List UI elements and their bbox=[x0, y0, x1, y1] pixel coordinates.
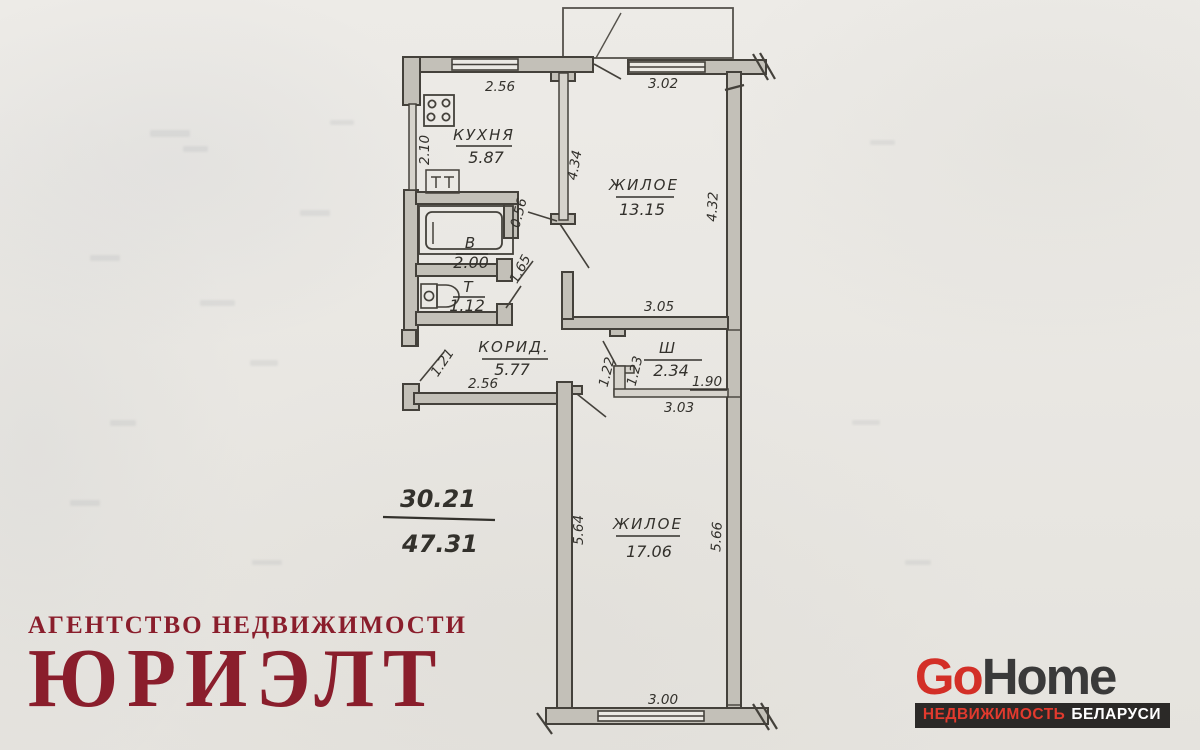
partitions bbox=[409, 73, 728, 397]
dim-closet-width: 1.90 bbox=[692, 374, 722, 390]
wall-bath-top bbox=[416, 192, 518, 204]
dim-entrance-door: 1.21 bbox=[428, 346, 458, 380]
wall-corner-top-left bbox=[403, 57, 420, 105]
room-living2-area: 17.06 bbox=[626, 542, 672, 561]
dim-living2-window: 3.00 bbox=[648, 692, 678, 708]
room-closet-area: 2.34 bbox=[653, 361, 689, 380]
dim-closet-door-right: 1.23 bbox=[624, 355, 647, 388]
dim-living2-height-left: 5.64 bbox=[571, 515, 587, 545]
room-bath-area: 2.00 bbox=[453, 253, 489, 272]
gohome-logo: GoHome НЕДВИЖИМОСТЬБЕЛАРУСИ bbox=[915, 654, 1170, 728]
sink-icon bbox=[426, 170, 459, 193]
wall-corridor-bottom bbox=[414, 393, 562, 404]
room-kitchen-area: 5.87 bbox=[468, 148, 504, 167]
gohome-go-text: Go bbox=[915, 648, 982, 705]
partition-kitchen-left bbox=[409, 104, 416, 190]
balcony-outline bbox=[563, 8, 733, 58]
toilet-door-swing bbox=[506, 286, 521, 308]
dim-closet-span: 3.03 bbox=[664, 400, 694, 416]
wall-living1-bottom bbox=[562, 317, 728, 329]
dim-living1-width: 3.05 bbox=[644, 299, 674, 315]
wall-notch bbox=[610, 329, 625, 336]
dim-right-wall-height: 4.32 bbox=[704, 191, 722, 222]
stove-icon bbox=[424, 95, 454, 126]
room-living2-label: ЖИЛОЕ bbox=[612, 515, 683, 533]
gohome-tagline-left: НЕДВИЖИМОСТЬ bbox=[923, 706, 1065, 723]
gohome-tagline-right: БЕЛАРУСИ bbox=[1071, 706, 1161, 723]
wall-living1-stub bbox=[562, 272, 573, 319]
wall-toilet-post bbox=[497, 304, 512, 325]
room-living1-area: 13.15 bbox=[619, 200, 665, 219]
room-closet-label: Ш bbox=[659, 339, 677, 357]
agency-logo: АГЕНТСТВО НЕДВИЖИМОСТИ ЮРИЭЛТ bbox=[28, 612, 440, 718]
wall-living2-left bbox=[557, 382, 572, 712]
dim-corridor-wall: 2.56 bbox=[468, 376, 498, 392]
wall-left-end-block bbox=[402, 330, 416, 346]
room-toilet-label: Т bbox=[463, 278, 474, 296]
balcony-door-leaf bbox=[594, 64, 621, 79]
dim-living2-height-right: 5.66 bbox=[708, 521, 726, 552]
dim-top-left-window: 2.56 bbox=[485, 79, 515, 95]
door-post-living2 bbox=[572, 386, 582, 394]
room-kitchen-label: КУХНЯ bbox=[453, 126, 515, 144]
room-bath-label: В bbox=[465, 234, 477, 252]
area-overall-total: 47.31 bbox=[401, 530, 478, 558]
room-toilet-area: 1.12 bbox=[449, 296, 485, 315]
living2-door-swing bbox=[577, 394, 606, 417]
agency-name: ЮРИЭЛТ bbox=[28, 638, 440, 720]
balcony-door-swing bbox=[596, 13, 621, 58]
gohome-wordmark: GoHome bbox=[915, 654, 1170, 700]
wall-right bbox=[727, 72, 741, 724]
gohome-home-text: Home bbox=[982, 648, 1116, 705]
dim-toilet-door: 1.65 bbox=[506, 252, 534, 286]
area-summary: 30.21 47.31 bbox=[383, 485, 495, 558]
partition-kitchen-living1 bbox=[559, 73, 568, 220]
scanned-floor-plan-page: КУХНЯ 5.87 ЖИЛОЕ 13.15 В 2.00 Т 1.12 КОР… bbox=[0, 0, 1200, 750]
dim-kitchen-depth: 2.10 bbox=[417, 135, 433, 165]
area-living-total: 30.21 bbox=[400, 485, 476, 513]
room-corridor-label: КОРИД. bbox=[478, 338, 549, 356]
room-corridor-area: 5.77 bbox=[494, 360, 530, 379]
room-living1-label: ЖИЛОЕ bbox=[608, 176, 679, 194]
gohome-tagline-bar: НЕДВИЖИМОСТЬБЕЛАРУСИ bbox=[915, 703, 1170, 728]
living1-door-swing bbox=[560, 224, 589, 268]
dim-top-right-window: 3.02 bbox=[648, 76, 678, 92]
